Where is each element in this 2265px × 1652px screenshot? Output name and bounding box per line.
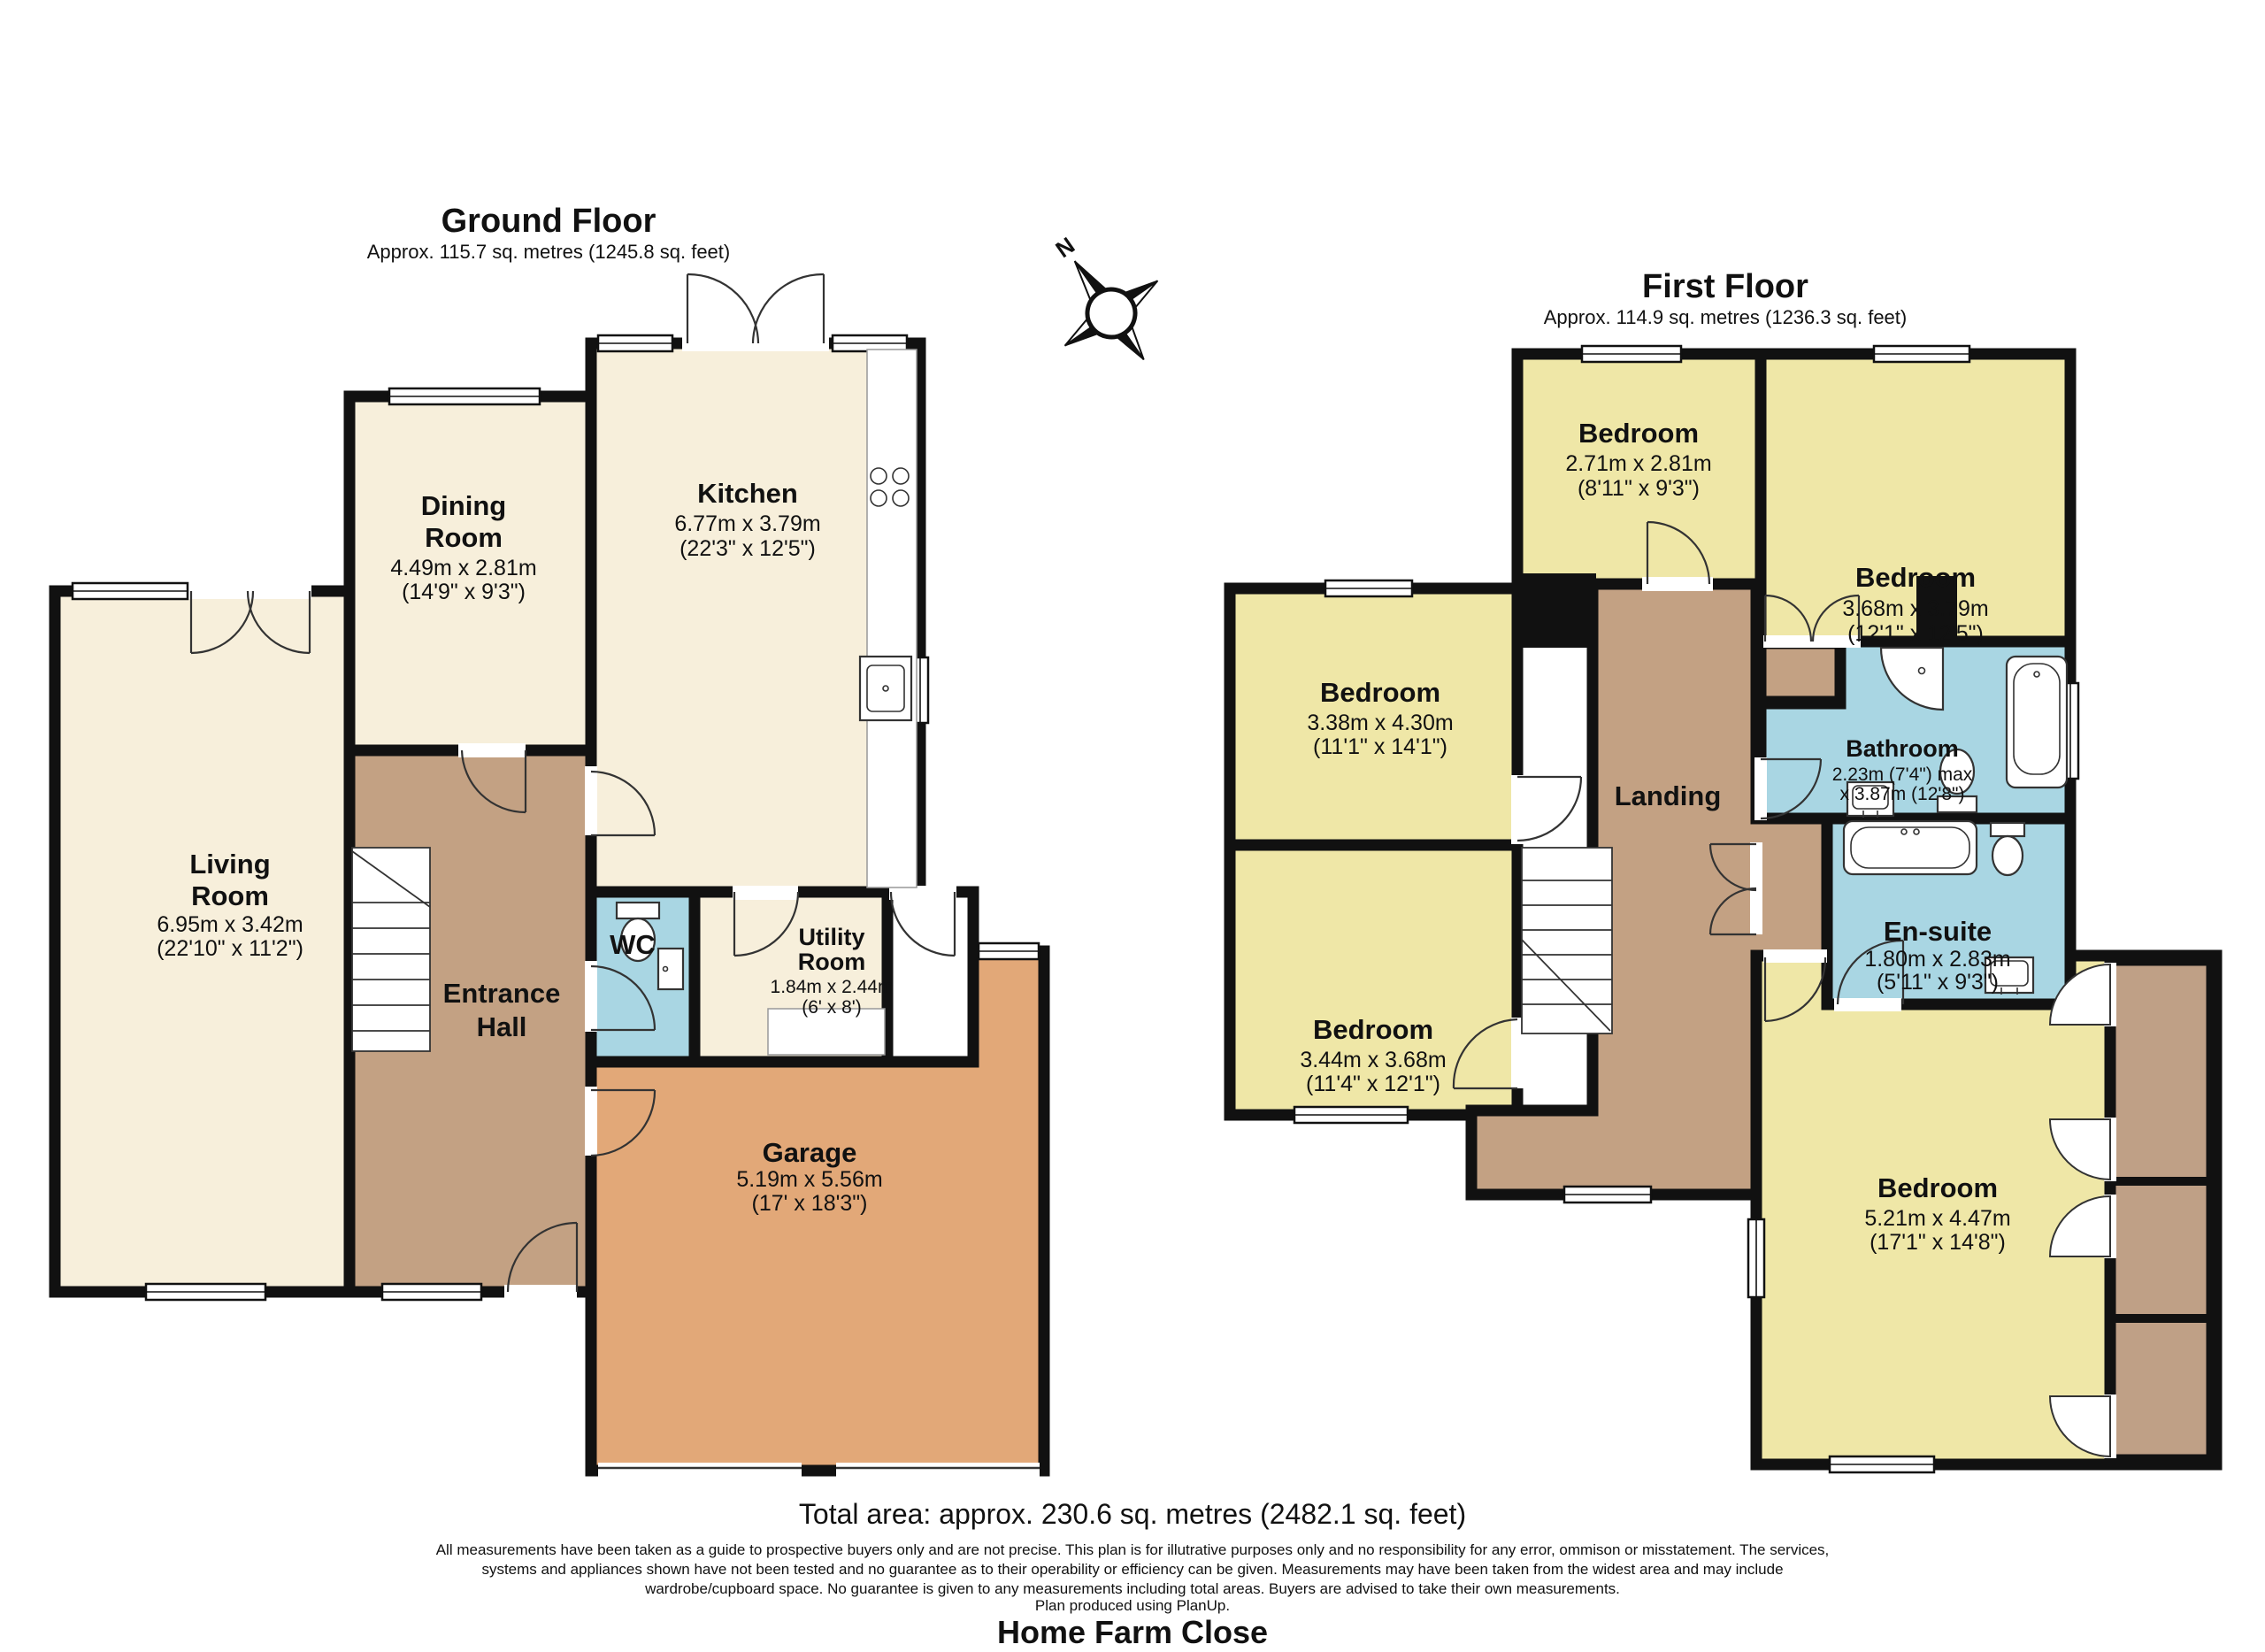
living-label: Living bbox=[189, 849, 270, 880]
kitchen-dim-m: 6.77m x 3.79m bbox=[674, 511, 820, 536]
window bbox=[979, 943, 1039, 959]
window bbox=[1325, 580, 1412, 596]
kitchen-counter bbox=[867, 350, 917, 887]
hall-label: Entrance bbox=[443, 978, 561, 1009]
wc-label: WC bbox=[610, 929, 656, 960]
kitchen-sink-icon bbox=[860, 657, 911, 720]
bedroom5-dim-m: 5.21m x 4.47m bbox=[1864, 1206, 2010, 1231]
footer: Total area: approx. 230.6 sq. metres (24… bbox=[436, 1498, 1830, 1648]
window bbox=[382, 1284, 481, 1300]
landing-label: Landing bbox=[1615, 780, 1722, 811]
window bbox=[146, 1284, 265, 1300]
first-floor-subtitle: Approx. 114.9 sq. metres (1236.3 sq. fee… bbox=[1544, 306, 1907, 328]
ensuite-bathtub-icon bbox=[1844, 821, 1977, 874]
utility-dim-ft: (6' x 8') bbox=[802, 997, 862, 1018]
first-stairs bbox=[1522, 848, 1612, 1033]
ground-floor-title: Ground Floor bbox=[441, 203, 656, 240]
window bbox=[389, 388, 540, 404]
window bbox=[1874, 346, 1969, 362]
wall-mass bbox=[1515, 573, 1596, 648]
ground-stairs bbox=[352, 848, 430, 1051]
window bbox=[1582, 346, 1681, 362]
door-bedroom3 bbox=[1517, 777, 1581, 841]
window bbox=[1830, 1456, 1934, 1472]
address-title: Home Farm Close bbox=[997, 1614, 1268, 1648]
bedroom2-label: Bedroom bbox=[1855, 562, 1976, 593]
bedroom3-dim-ft: (11'1" x 14'1") bbox=[1313, 734, 1447, 759]
bedroom5-dim-ft: (17'1" x 14'8") bbox=[1870, 1230, 2006, 1255]
window bbox=[73, 583, 188, 599]
living-dim-ft: (22'10" x 11'2") bbox=[157, 936, 303, 961]
garage-dim-m: 5.19m x 5.56m bbox=[736, 1167, 882, 1192]
bathroom-bathtub-icon bbox=[2007, 657, 2067, 788]
kitchen-label: Kitchen bbox=[697, 478, 798, 509]
bedroom1-dim-ft: (8'11" x 9'3") bbox=[1578, 476, 1700, 501]
bedroom2-dim-ft: (12'1" x 12'5") bbox=[1847, 621, 1984, 646]
bedroom3-label: Bedroom bbox=[1320, 677, 1440, 708]
bedroom1-dim-m: 2.71m x 2.81m bbox=[1565, 451, 1711, 476]
kitchen-dim-ft: (22'3" x 12'5") bbox=[679, 536, 816, 561]
dining-label2: Room bbox=[425, 522, 503, 553]
dining-dim-ft: (14'9" x 9'3") bbox=[402, 580, 526, 604]
bedroom5-label: Bedroom bbox=[1877, 1172, 1998, 1203]
bedroom5-wardrobes bbox=[2110, 960, 2212, 1460]
bedroom2-dim-m: 3.68m x 3.79m bbox=[1842, 596, 1988, 621]
utility-label2: Room bbox=[798, 949, 866, 975]
bedroom4-dim-m: 3.44m x 3.68m bbox=[1300, 1048, 1446, 1072]
compass-north-label: N bbox=[1051, 232, 1080, 263]
bathroom-label: Bathroom bbox=[1846, 735, 1959, 762]
dining-label: Dining bbox=[421, 490, 506, 521]
garage-dim-ft: (17' x 18'3") bbox=[752, 1191, 868, 1216]
wc-sink-icon bbox=[658, 949, 683, 989]
utility-dim-m: 1.84m x 2.44m bbox=[771, 977, 894, 997]
dining-dim-m: 4.49m x 2.81m bbox=[390, 556, 536, 580]
compass-icon: N bbox=[1011, 204, 1190, 392]
bedroom4-dim-ft: (11'4" x 12'1") bbox=[1306, 1072, 1440, 1096]
utility-label: Utility bbox=[798, 924, 864, 950]
disclaimer-line-1: All measurements have been taken as a gu… bbox=[436, 1541, 1830, 1558]
bedroom4-label: Bedroom bbox=[1313, 1014, 1433, 1045]
disclaimer-line-4: Plan produced using PlanUp. bbox=[1035, 1597, 1230, 1614]
bedroom1-label: Bedroom bbox=[1578, 418, 1699, 449]
disclaimer-line-2: systems and appliances shown have not be… bbox=[481, 1561, 1783, 1578]
disclaimer-line-3: wardrobe/cupboard space. No guarantee is… bbox=[644, 1580, 1620, 1597]
window bbox=[1294, 1107, 1408, 1123]
window bbox=[1564, 1187, 1651, 1203]
ensuite-toilet-icon bbox=[1991, 823, 2024, 875]
ensuite-dim-m: 1.80m x 2.83m bbox=[1864, 947, 2010, 972]
ground-floor-subtitle: Approx. 115.7 sq. metres (1245.8 sq. fee… bbox=[367, 241, 730, 263]
bedroom3-dim-m: 3.38m x 4.30m bbox=[1307, 711, 1453, 735]
bathroom-dim-ft: x 3.87m (12'8") bbox=[1839, 784, 1964, 804]
garage-label: Garage bbox=[763, 1137, 857, 1168]
first-floor-title: First Floor bbox=[1642, 268, 1808, 305]
total-area-text: Total area: approx. 230.6 sq. metres (24… bbox=[799, 1498, 1466, 1530]
floorplan-svg: Ground Floor Approx. 115.7 sq. metres (1… bbox=[0, 0, 2265, 1648]
landing-lobby bbox=[1761, 643, 1840, 702]
floorplan-page: Ground Floor Approx. 115.7 sq. metres (1… bbox=[0, 0, 2265, 1648]
bathroom-dim-m: 2.23m (7'4") max bbox=[1832, 765, 1973, 785]
window bbox=[598, 335, 672, 351]
living-label2: Room bbox=[191, 880, 269, 911]
door-kitchen-french-left bbox=[687, 274, 758, 343]
ensuite-label: En-suite bbox=[1884, 916, 1992, 947]
ground-floor-plan: Ground Floor Approx. 115.7 sq. metres (1… bbox=[55, 203, 1044, 1479]
ensuite-dim-ft: (5'11" x 9'3") bbox=[1877, 970, 1999, 995]
hall-label2: Hall bbox=[477, 1011, 527, 1042]
first-floor-plan: First Floor Approx. 114.9 sq. metres (12… bbox=[1230, 268, 2216, 1472]
door-kitchen-french-right bbox=[753, 274, 824, 343]
side-porch bbox=[887, 892, 973, 1062]
window bbox=[1748, 1219, 1764, 1297]
living-dim-m: 6.95m x 3.42m bbox=[157, 912, 303, 937]
